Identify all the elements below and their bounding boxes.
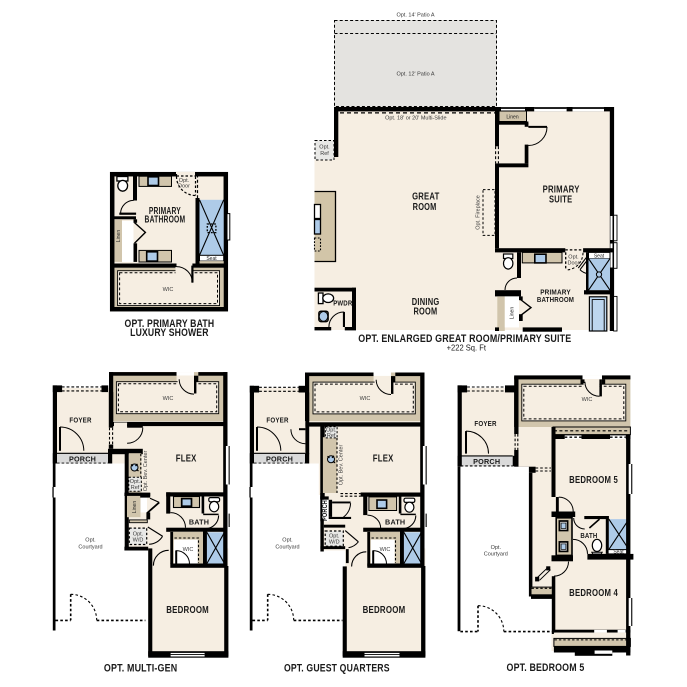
svg-text:Opt. 12' Patio A: Opt. 12' Patio A <box>396 72 434 78</box>
svg-text:Linen: Linen <box>116 230 122 242</box>
svg-text:LUXURY SHOWER: LUXURY SHOWER <box>130 327 209 339</box>
svg-text:WIC: WIC <box>582 397 593 403</box>
svg-text:BATH: BATH <box>580 531 597 540</box>
svg-text:Linen: Linen <box>132 501 138 513</box>
svg-text:Seat: Seat <box>594 253 605 259</box>
svg-text:Opt.: Opt. <box>85 538 96 544</box>
svg-text:PORCH: PORCH <box>266 454 293 463</box>
svg-text:OPT. GUEST QUARTERS: OPT. GUEST QUARTERS <box>284 663 390 675</box>
svg-text:Linen: Linen <box>510 307 516 319</box>
svg-text:BATHROOM: BATHROOM <box>537 295 574 304</box>
svg-text:PORCH: PORCH <box>320 500 329 521</box>
svg-text:Ref: Ref <box>131 485 140 491</box>
svg-text:Opt. Bev. Center: Opt. Bev. Center <box>143 451 149 492</box>
svg-text:WIC: WIC <box>360 396 371 402</box>
svg-text:FOYER: FOYER <box>474 419 497 428</box>
svg-text:WIC: WIC <box>163 396 174 402</box>
svg-text:WIC: WIC <box>380 547 391 553</box>
svg-text:Door: Door <box>568 261 580 267</box>
svg-text:ROOM: ROOM <box>413 306 437 317</box>
svg-text:FOYER: FOYER <box>266 416 289 425</box>
svg-text:Opt.: Opt. <box>282 538 293 544</box>
svg-text:Door: Door <box>178 184 190 190</box>
svg-text:+222 Sq. Ft: +222 Sq. Ft <box>447 343 487 352</box>
svg-text:FLEX: FLEX <box>373 454 394 465</box>
svg-text:PWDR: PWDR <box>333 298 353 307</box>
svg-text:W/D: W/D <box>329 540 340 546</box>
svg-text:PORCH: PORCH <box>473 457 500 466</box>
svg-text:FLEX: FLEX <box>176 454 197 465</box>
svg-text:BEDROOM 4: BEDROOM 4 <box>569 588 618 599</box>
svg-text:FOYER: FOYER <box>69 416 92 425</box>
svg-text:Opt. Bev. Center: Opt. Bev. Center <box>339 445 345 486</box>
svg-text:Courtyard: Courtyard <box>275 545 299 551</box>
svg-text:WIC: WIC <box>183 547 194 553</box>
svg-text:SUITE: SUITE <box>549 195 572 206</box>
svg-text:OPT. BEDROOM 5: OPT. BEDROOM 5 <box>507 662 585 674</box>
svg-text:Ref: Ref <box>320 151 329 157</box>
svg-text:OPT. MULTI-GEN: OPT. MULTI-GEN <box>104 663 177 675</box>
svg-text:ROOM: ROOM <box>413 202 437 213</box>
svg-text:Ref: Ref <box>327 433 336 439</box>
svg-text:Opt.: Opt. <box>491 545 502 551</box>
svg-text:BEDROOM: BEDROOM <box>363 605 406 616</box>
svg-text:PORCH: PORCH <box>69 454 96 463</box>
svg-text:Opt. Fireplace: Opt. Fireplace <box>475 195 481 230</box>
svg-text:Courtyard: Courtyard <box>78 545 102 551</box>
svg-text:BEDROOM 5: BEDROOM 5 <box>569 475 618 486</box>
svg-text:Opt. 18' or 20' Multi-Slide: Opt. 18' or 20' Multi-Slide <box>385 115 446 121</box>
svg-text:GREAT: GREAT <box>412 192 439 203</box>
svg-text:Seat: Seat <box>206 256 217 262</box>
svg-text:Courtyard: Courtyard <box>484 552 508 558</box>
svg-text:BATHROOM: BATHROOM <box>145 215 186 226</box>
svg-text:Linen: Linen <box>506 114 518 120</box>
svg-text:Opt. 14' Patio A: Opt. 14' Patio A <box>396 13 434 19</box>
svg-text:BEDROOM: BEDROOM <box>166 605 209 616</box>
svg-text:BATH: BATH <box>385 518 405 527</box>
svg-text:Opt.: Opt. <box>319 145 330 151</box>
svg-text:W/D: W/D <box>133 538 144 544</box>
svg-text:WIC: WIC <box>163 287 174 293</box>
svg-text:BATH: BATH <box>189 518 209 527</box>
